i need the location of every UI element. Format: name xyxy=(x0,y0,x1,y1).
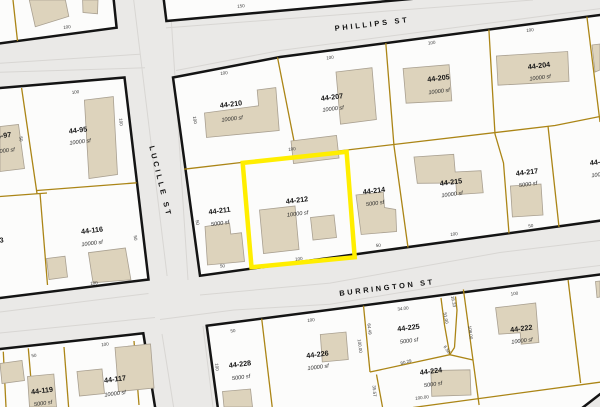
svg-text:100: 100 xyxy=(428,40,437,46)
svg-text:150: 150 xyxy=(237,3,245,9)
svg-text:100: 100 xyxy=(101,341,110,347)
svg-text:5000 sf: 5000 sf xyxy=(34,400,54,407)
svg-text:100: 100 xyxy=(450,231,459,237)
svg-text:100: 100 xyxy=(90,280,99,286)
svg-text:100: 100 xyxy=(307,317,316,323)
svg-text:100: 100 xyxy=(295,256,304,262)
svg-text:100: 100 xyxy=(118,118,124,126)
svg-text:100: 100 xyxy=(71,89,80,95)
svg-text:44-213: 44-213 xyxy=(589,156,600,168)
svg-text:100: 100 xyxy=(63,24,72,30)
svg-text:100: 100 xyxy=(288,146,297,152)
svg-text:100: 100 xyxy=(526,27,535,33)
svg-text:100: 100 xyxy=(220,70,229,76)
svg-text:35.57: 35.57 xyxy=(372,385,378,397)
svg-text:100: 100 xyxy=(326,55,335,61)
svg-text:100: 100 xyxy=(214,363,220,371)
svg-text:100: 100 xyxy=(510,291,519,297)
